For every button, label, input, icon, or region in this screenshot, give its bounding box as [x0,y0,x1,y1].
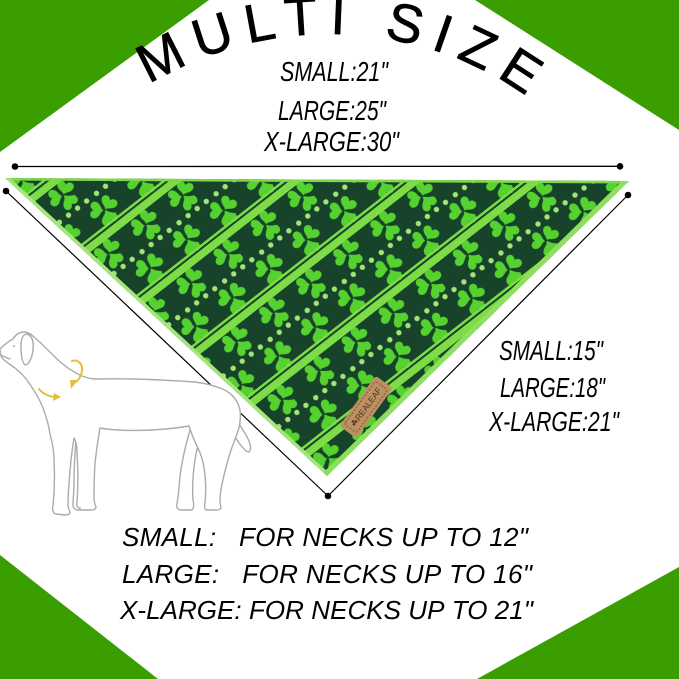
svg-text:LARGE:25": LARGE:25" [278,95,387,126]
svg-text:SMALL:15": SMALL:15" [499,335,604,366]
svg-text:LARGE:18": LARGE:18" [500,372,606,403]
svg-text:SMALL:21": SMALL:21" [280,56,389,87]
svg-text:X-LARGE:30": X-LARGE:30" [263,126,400,157]
svg-text:LARGE: FOR NECKS UP TO 16": LARGE: FOR NECKS UP TO 16" [122,559,534,589]
svg-text:X-LARGE: FOR NECKS UP TO 21": X-LARGE: FOR NECKS UP TO 21" [119,595,535,625]
svg-text:X-LARGE:21": X-LARGE:21" [488,406,620,437]
svg-text:SMALL: FOR NECKS UP TO 12": SMALL: FOR NECKS UP TO 12" [122,522,530,552]
